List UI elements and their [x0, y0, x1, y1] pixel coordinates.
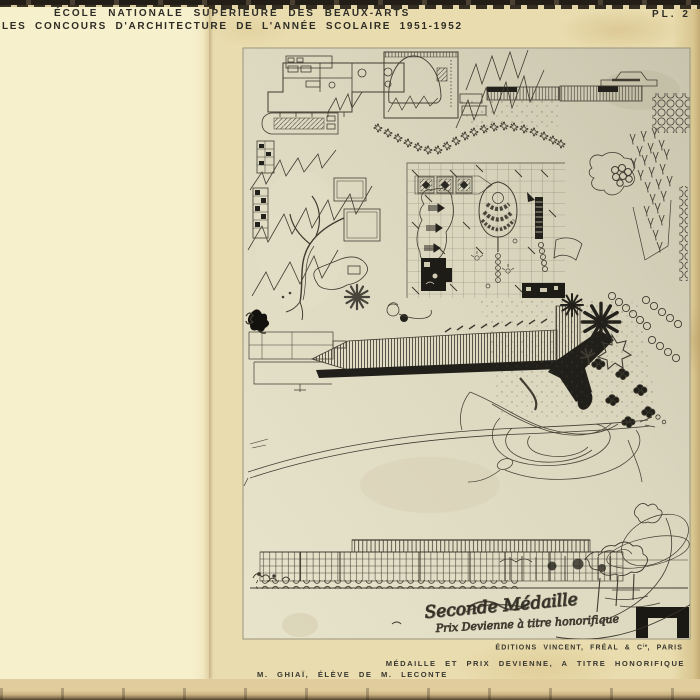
stair-tower	[535, 197, 543, 239]
scanned-plate-page: Seconde Médaille Seconde Médaille Prix D…	[0, 0, 700, 700]
interleaf-sheet	[0, 7, 209, 679]
header-school: ÉCOLE NATIONALE SUPÉRIEURE DES BEAUX-ART…	[54, 8, 410, 19]
publisher-caption: ÉDITIONS VINCENT, FRÉAL & Cie, PARIS	[495, 643, 683, 652]
author-caption: M. GHIAÏ, ÉLÈVE DE M. LECONTE	[257, 670, 448, 679]
page-bottom-specks	[0, 688, 700, 700]
tree-circle-cluster	[652, 93, 690, 133]
publisher-prefix: ÉDITIONS VINCENT, FRÉAL & C	[495, 645, 643, 652]
plate-number: PL. 2	[652, 9, 691, 20]
header-series: LES CONCOURS D'ARCHITECTURE DE L'ANNÉE S…	[2, 21, 463, 32]
award-caption: MÉDAILLE ET PRIX DEVIENNE, A TITRE HONOR…	[386, 659, 685, 668]
plaza-grid	[407, 163, 582, 298]
tree-row-chain	[679, 186, 688, 281]
plaza-corner-building	[522, 283, 565, 298]
publisher-suffix: , PARIS	[648, 645, 683, 652]
